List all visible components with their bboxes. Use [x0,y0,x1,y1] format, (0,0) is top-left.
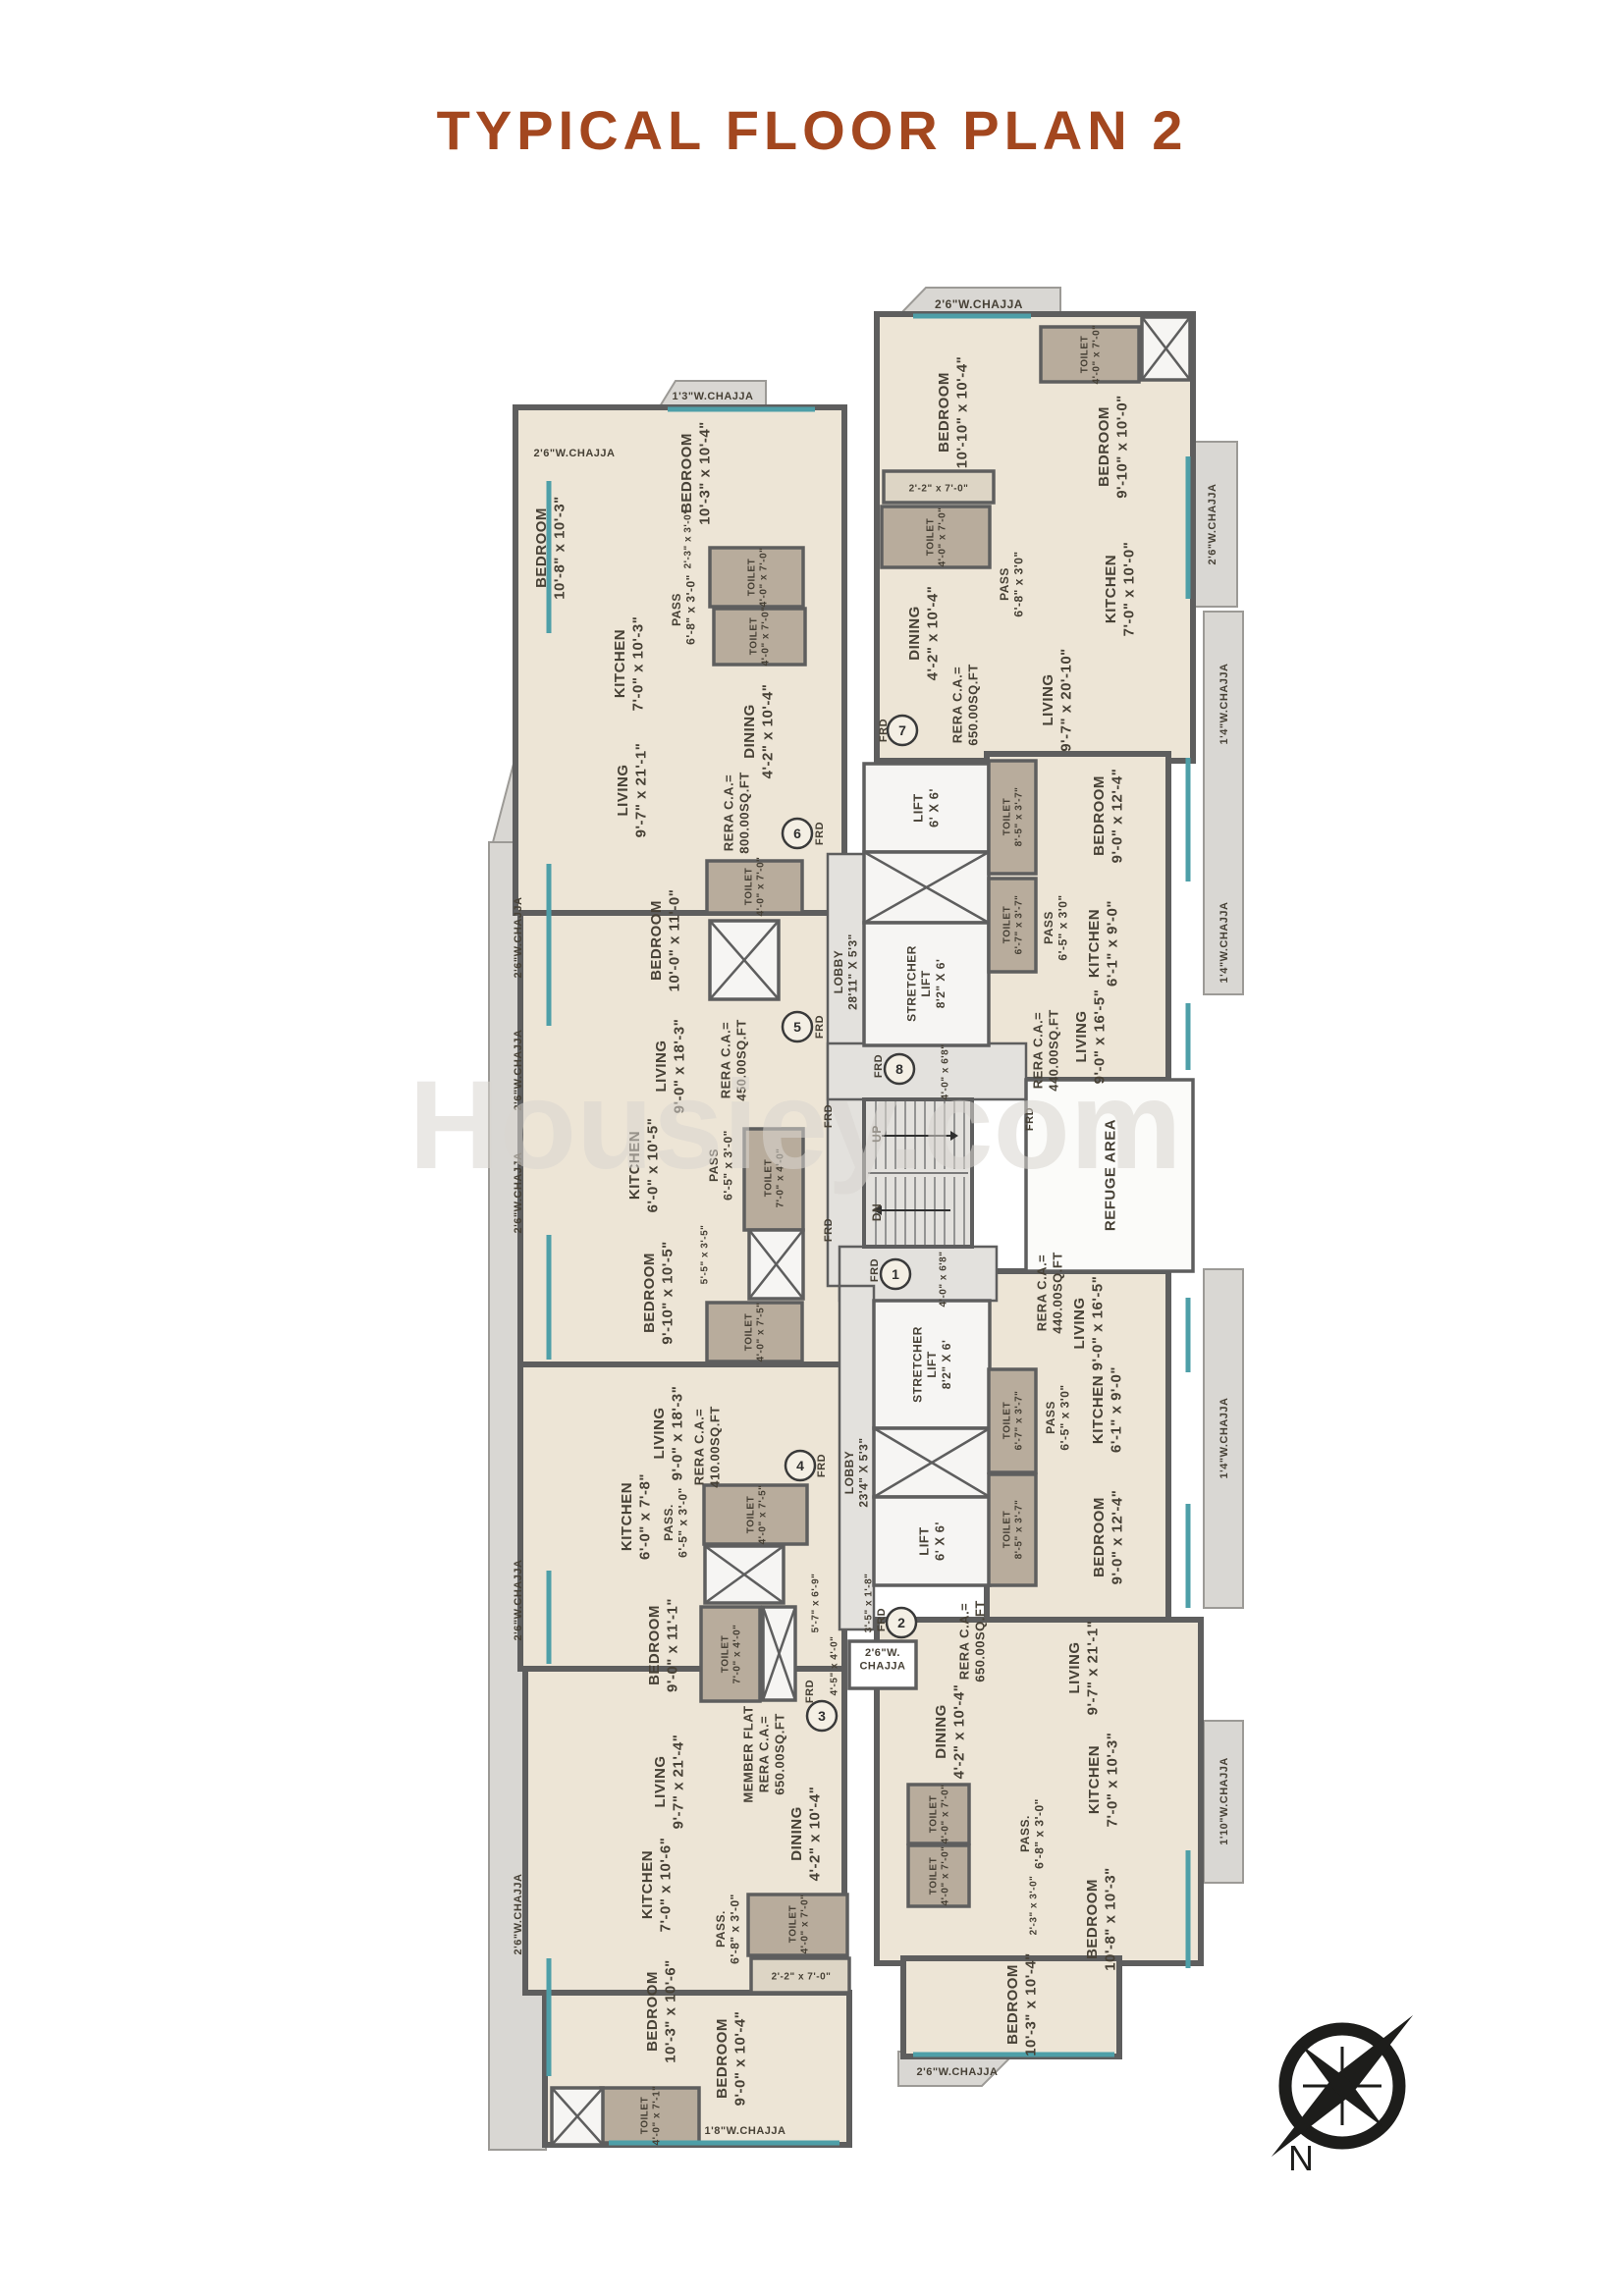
plan-label: RERA C.A.=650.00SQ.FT [950,664,981,746]
plan-label: KITCHEN7'-0" x 10'-6" [639,1838,674,1933]
plan-label: FRD [804,1680,816,1703]
plan-label: RERA C.A.=440.00SQ.FT [1035,1252,1065,1334]
plan-label: FRD [816,1454,828,1477]
plan-label: BEDROOM10'-8" x 10'-3" [533,496,568,600]
flat-number: 4 [796,1458,804,1473]
plan-label: BEDROOM9'-0" x 12'-4" [1091,1490,1125,1585]
plan-label: BEDROOM9'-0" x 12'-4" [1091,769,1125,864]
plan-label: 2'6"W.CHAJJA [859,1647,905,1672]
flat-number: 7 [898,722,906,738]
plan-label: BEDROOM10'-10" x 10'-4" [936,356,970,468]
floor-plan-svg: BEDROOM10'-10" x 10'-4"TOILET4'-0" x 7'-… [0,0,1624,2296]
flat-number: 1 [892,1266,899,1282]
plan-label: 5'-7" x 6'-9" [811,1574,822,1633]
plan-label: FRD [823,1218,835,1242]
plan-label: BEDROOM9'-10" x 10'-0" [1096,395,1130,499]
plan-label: LIFT6' X 6' [911,788,942,828]
plan-label: KITCHEN6'-0" x 7'-8" [619,1473,653,1560]
plan-label: RERA C.A.=410.00SQ.FT [692,1406,723,1488]
wc-cell [714,609,805,665]
plan-label: 2'6"W.CHAJJA [917,2066,999,2078]
plan-label: KITCHEN7'-0" x 10'-0" [1103,542,1137,637]
plan-label: 4'-0" x 6'8" [939,1252,949,1308]
plan-label: 2'6"W.CHAJJA [534,448,616,459]
plan-label: 2'-2" x 7'-0" [909,484,969,495]
plan-label: 4'-5" x 4'-0" [830,1636,840,1696]
plan-label: FRD [814,822,826,845]
plan-label: RERA C.A.=650.00SQ.FT [957,1600,988,1682]
plan-label: LIFT6' X 6' [917,1522,947,1561]
plan-label: 2'6"W.CHAJJA [513,897,524,979]
compass-north-label: N [1288,2138,1314,2178]
plan-label: 1'8"W.CHAJJA [705,2125,786,2137]
plan-label: 2'-3" x 3'-0" [683,509,694,569]
plan-label: MEMBER FLATRERA C.A.=650.00SQ.FT [741,1705,787,1802]
plan-label: KITCHEN7'-0" x 10'-3" [612,616,646,712]
plan-label: 1'3"W.CHAJJA [673,391,754,402]
watermark: Housiey.com [408,1055,1181,1196]
plan-label: RERA C.A.=800.00SQ.FT [722,772,752,854]
plan-label: 2'-3" x 3'-0" [1029,1876,1040,1936]
plan-label: BEDROOM10'-3" x 10'-6" [644,1959,678,2063]
plan-label: BEDROOM10'-3" x 10'-4" [1004,1952,1039,2056]
floor-plan-page: TYPICAL FLOOR PLAN 2 BEDROOM10'-10" x 10… [0,0,1624,2296]
plan-label: 1'4"W.CHAJJA [1218,1398,1230,1479]
plan-label: FRD [869,1258,881,1282]
plan-label: 1'10"W.CHAJJA [1218,1757,1230,1845]
plan-label: BEDROOM9'-10" x 10'-5" [641,1241,676,1345]
plan-label: BEDROOM10'-0" x 11'-0" [648,889,682,992]
plan-label: 2'6"W.CHAJJA [513,1560,524,1641]
plan-label: BEDROOM9'-0" x 10'-4" [714,2011,748,2107]
flat-number: 6 [793,826,801,841]
plan-label: 1'4"W.CHAJJA [1218,902,1230,984]
plan-label: 2'-2" x 7'-0" [772,1972,832,1983]
flat-number: 5 [793,1019,801,1035]
plan-label: 5'-5" x 3'-5" [700,1225,711,1285]
wc-cell [707,1303,802,1362]
plan-label: KITCHEN6'-1" x 9'-0" [1086,900,1120,987]
plan-label: KITCHEN7'-0" x 10'-3" [1086,1733,1120,1828]
flat-number: 3 [818,1708,826,1724]
wc-cell [707,861,802,913]
plan-label: BEDROOM10'-8" x 10'-3" [1084,1867,1118,1971]
plan-label: FRD [814,1015,826,1039]
plan-label: DN [870,1203,884,1221]
plan-label: 3'-5" x 1'-8" [864,1574,875,1633]
plan-label: 2'6"W.CHAJJA [513,1874,524,1955]
plan-label: BEDROOM9'-0" x 11'-1" [646,1598,680,1692]
flat-number: 2 [897,1615,905,1630]
plan-label: 1'4"W.CHAJJA [1218,664,1230,745]
plan-label: 2'6"W.CHAJJA [1207,484,1218,565]
plan-label: KITCHEN6'-1" x 9'-0" [1090,1366,1124,1453]
plan-label: 2'6"W.CHAJJA [935,297,1023,311]
